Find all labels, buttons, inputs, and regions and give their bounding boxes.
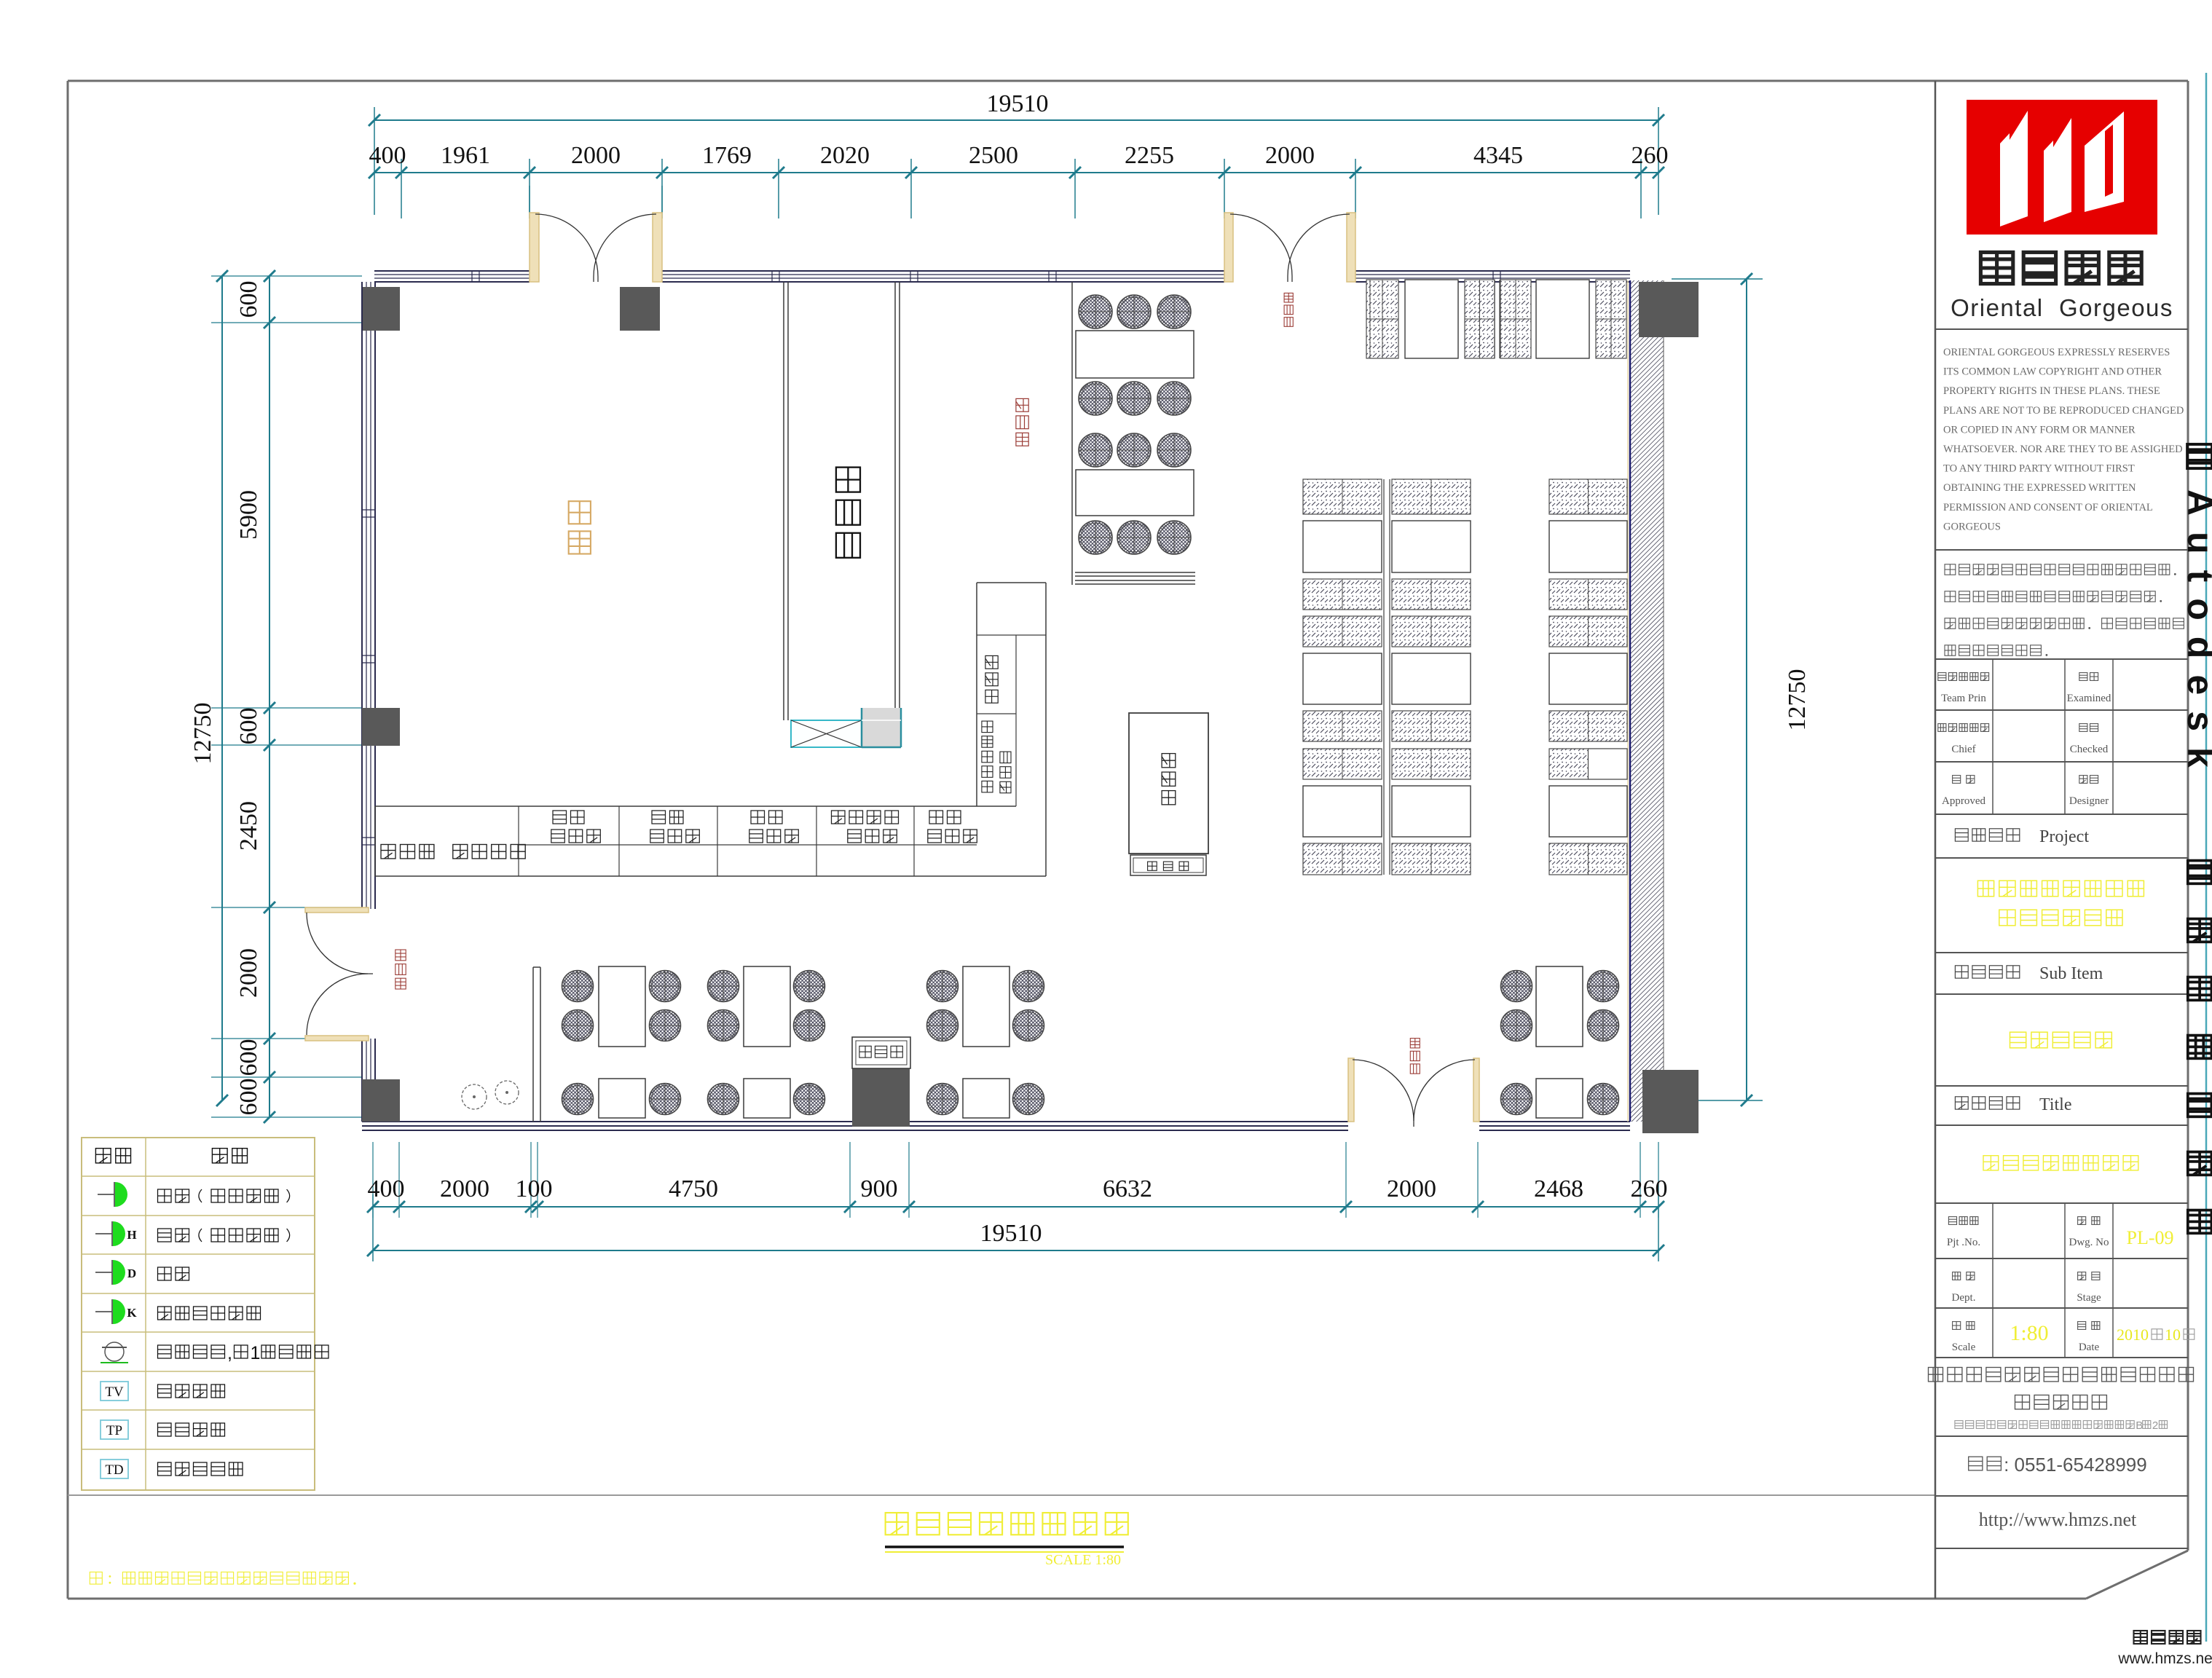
svg-text:6632: 6632 xyxy=(1103,1175,1152,1202)
svg-text:Date: Date xyxy=(2079,1342,2100,1353)
svg-text:12750: 12750 xyxy=(189,703,216,765)
svg-text:D: D xyxy=(127,1267,136,1280)
svg-text:2000: 2000 xyxy=(1387,1175,1436,1202)
svg-text:Chief: Chief xyxy=(1951,744,1975,755)
svg-text:ITS COMMON LAW COPYRIGHT AND O: ITS COMMON LAW COPYRIGHT AND OTHER xyxy=(1943,366,2162,378)
svg-text:ORIENTAL GORGEOUS EXPRESSLY RE: ORIENTAL GORGEOUS EXPRESSLY RESERVES xyxy=(1943,347,2170,358)
svg-text:Stage: Stage xyxy=(2077,1292,2101,1304)
svg-text:http://www.hmzs.net: http://www.hmzs.net xyxy=(1979,1509,2137,1530)
svg-text:H: H xyxy=(127,1228,136,1242)
svg-text:B: B xyxy=(2136,1419,2143,1432)
svg-text:PLANS ARE NOT TO BE REPRODUCED: PLANS ARE NOT TO BE REPRODUCED CHANGED xyxy=(1943,405,2184,417)
svg-text:4750: 4750 xyxy=(669,1175,718,1202)
svg-text:600: 600 xyxy=(235,708,262,745)
svg-text:5900: 5900 xyxy=(235,490,262,540)
svg-text:2000: 2000 xyxy=(440,1175,489,1202)
svg-text:Checked: Checked xyxy=(2070,744,2109,755)
svg-text:2450: 2450 xyxy=(235,801,262,851)
svg-text:WHATSOEVER. NOR ARE THEY TO BE: WHATSOEVER. NOR ARE THEY TO BE ASSIGHED xyxy=(1943,444,2183,455)
svg-text:100: 100 xyxy=(516,1175,553,1202)
svg-text:1769: 1769 xyxy=(702,142,752,169)
svg-text:,: , xyxy=(227,1343,232,1363)
svg-text:2000: 2000 xyxy=(571,142,621,169)
svg-text:: 0551-65428999: : 0551-65428999 xyxy=(2004,1454,2147,1476)
svg-text:2020: 2020 xyxy=(820,142,870,169)
svg-text:Team Prin: Team Prin xyxy=(1941,693,1986,704)
svg-text:Dwg. No: Dwg. No xyxy=(2069,1237,2109,1248)
svg-text:2500: 2500 xyxy=(969,142,1018,169)
svg-text:Project: Project xyxy=(2039,827,2089,846)
svg-text:PERMISSION AND CONSENT OF ORIE: PERMISSION AND CONSENT OF ORIENTAL xyxy=(1943,502,2153,513)
svg-text:Designer: Designer xyxy=(2069,795,2109,807)
svg-text:12750: 12750 xyxy=(1784,669,1811,731)
svg-text:K: K xyxy=(127,1306,137,1320)
svg-text:400: 400 xyxy=(368,1175,405,1202)
svg-text:SCALE 1:80: SCALE 1:80 xyxy=(1045,1552,1121,1568)
svg-text:260: 260 xyxy=(1632,142,1669,169)
svg-text:1: 1 xyxy=(251,1343,261,1363)
svg-text:Approved: Approved xyxy=(1942,795,1985,807)
svg-text:2000: 2000 xyxy=(1265,142,1315,169)
svg-text:19510: 19510 xyxy=(980,1220,1042,1247)
svg-text:400: 400 xyxy=(369,142,406,169)
svg-text:www.hmzs.net: www.hmzs.net xyxy=(2117,1650,2212,1667)
svg-text:600: 600 xyxy=(235,281,262,318)
svg-text:Scale: Scale xyxy=(1952,1342,1976,1353)
svg-text:4345: 4345 xyxy=(1473,142,1523,169)
svg-text:Autodesk: Autodesk xyxy=(2180,489,2212,784)
svg-text:Examined: Examined xyxy=(2067,693,2111,704)
svg-text:600: 600 xyxy=(235,1039,262,1076)
svg-text:600: 600 xyxy=(235,1079,262,1116)
svg-text:900: 900 xyxy=(861,1175,898,1202)
svg-text:19510: 19510 xyxy=(987,90,1049,117)
svg-text:2010: 2010 xyxy=(2117,1326,2149,1344)
svg-text:1961: 1961 xyxy=(441,142,490,169)
svg-text:TV: TV xyxy=(105,1384,124,1400)
svg-text:260: 260 xyxy=(1631,1175,1668,1202)
svg-text:TD: TD xyxy=(105,1462,123,1478)
svg-text:OBTAINING THE EXPRESSED WRITTE: OBTAINING THE EXPRESSED WRITTEN xyxy=(1943,482,2136,494)
svg-text:TO ANY THIRD PARTY WITHOUT FIR: TO ANY THIRD PARTY WITHOUT FIRST xyxy=(1943,463,2135,475)
svg-text:1:80: 1:80 xyxy=(2010,1321,2048,1345)
svg-text:OR COPIED IN ANY FORM OR MANNE: OR COPIED IN ANY FORM OR MANNER xyxy=(1943,424,2136,436)
svg-text:Oriental Gorgeous: Oriental Gorgeous xyxy=(1951,294,2173,321)
svg-text:2255: 2255 xyxy=(1125,142,1174,169)
svg-text:GORGEOUS: GORGEOUS xyxy=(1943,521,2001,532)
svg-text:2: 2 xyxy=(2152,1419,2158,1432)
svg-text:Pjt .No.: Pjt .No. xyxy=(1947,1237,1980,1248)
svg-text:Dept.: Dept. xyxy=(1952,1292,1976,1304)
svg-text:PL-09: PL-09 xyxy=(2127,1227,2174,1248)
svg-text:Sub Item: Sub Item xyxy=(2039,964,2103,983)
svg-text:Title: Title xyxy=(2039,1095,2071,1114)
svg-text:10: 10 xyxy=(2165,1326,2181,1344)
svg-text:PROPERTY RIGHTS IN THESE PLANS: PROPERTY RIGHTS IN THESE PLANS. THESE xyxy=(1943,385,2160,397)
svg-text:TP: TP xyxy=(106,1423,122,1438)
svg-text:2468: 2468 xyxy=(1534,1175,1583,1202)
svg-text:2000: 2000 xyxy=(235,948,262,998)
